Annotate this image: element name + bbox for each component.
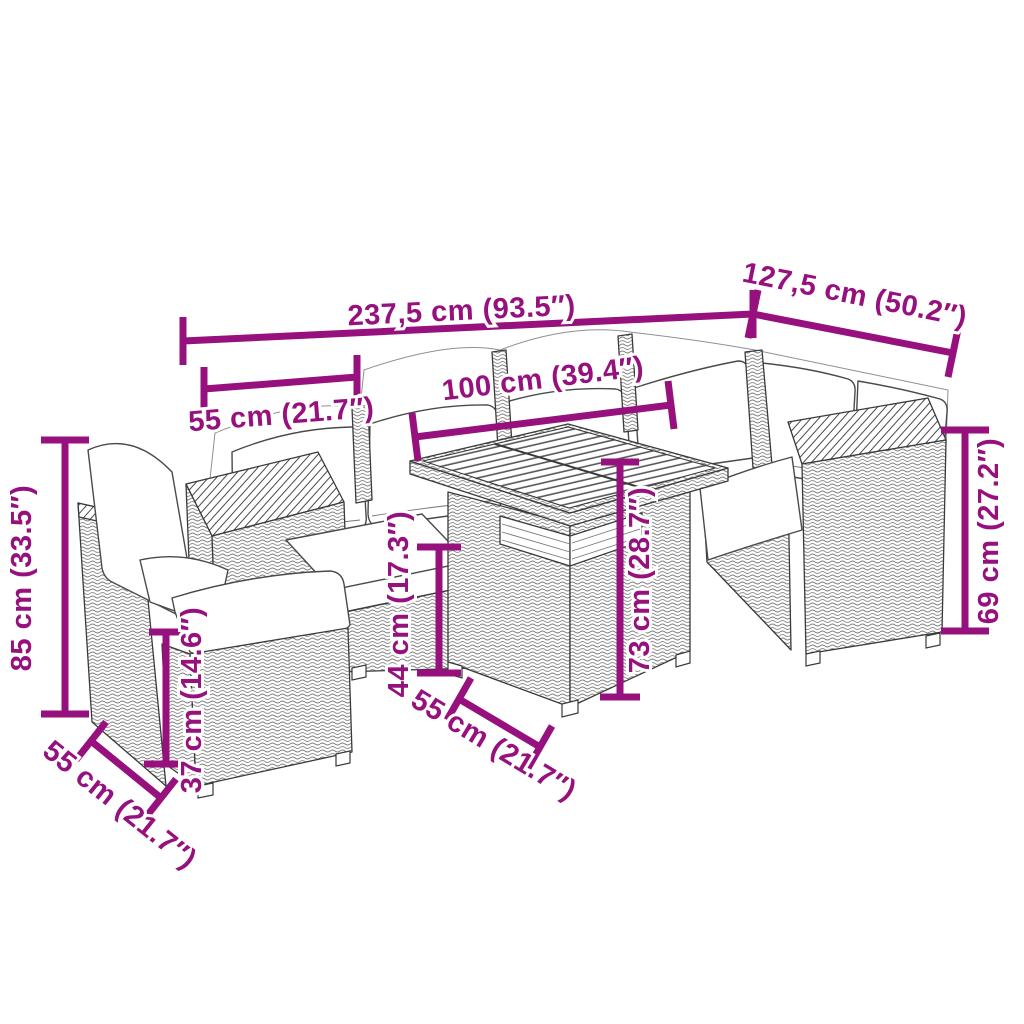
dimension-label: 69 cm (27.2″) — [973, 438, 1005, 624]
stool-foot — [336, 751, 350, 766]
stool-front — [190, 628, 352, 786]
sofa-foot — [352, 665, 366, 680]
dimension-label: 44 cm (17.3″) — [383, 511, 415, 697]
dimension-label: 73 cm (28.7″) — [624, 487, 656, 673]
right-armrest-front — [802, 440, 946, 654]
dimension-label: 127,5 cm (50.2″) — [740, 257, 970, 334]
dimension-sofa-height: 69 cm (27.2″) — [941, 430, 1005, 631]
sofa-foot — [806, 651, 820, 666]
dimension-sofa-section-width: 55 cm (21.7″) — [187, 355, 375, 438]
dimension-label: 85 cm (33.5″) — [6, 485, 38, 671]
dimension-label: 37 cm (14.6″) — [176, 607, 208, 793]
furniture-dimension-diagram: 237,5 cm (93.5″) 127,5 cm (50.2″) 55 cm … — [0, 0, 1024, 1024]
diagram-canvas: 237,5 cm (93.5″) 127,5 cm (50.2″) 55 cm … — [0, 0, 1024, 1024]
sofa-foot — [926, 633, 940, 648]
dimension-chair-height: 85 cm (33.5″) — [6, 440, 89, 714]
